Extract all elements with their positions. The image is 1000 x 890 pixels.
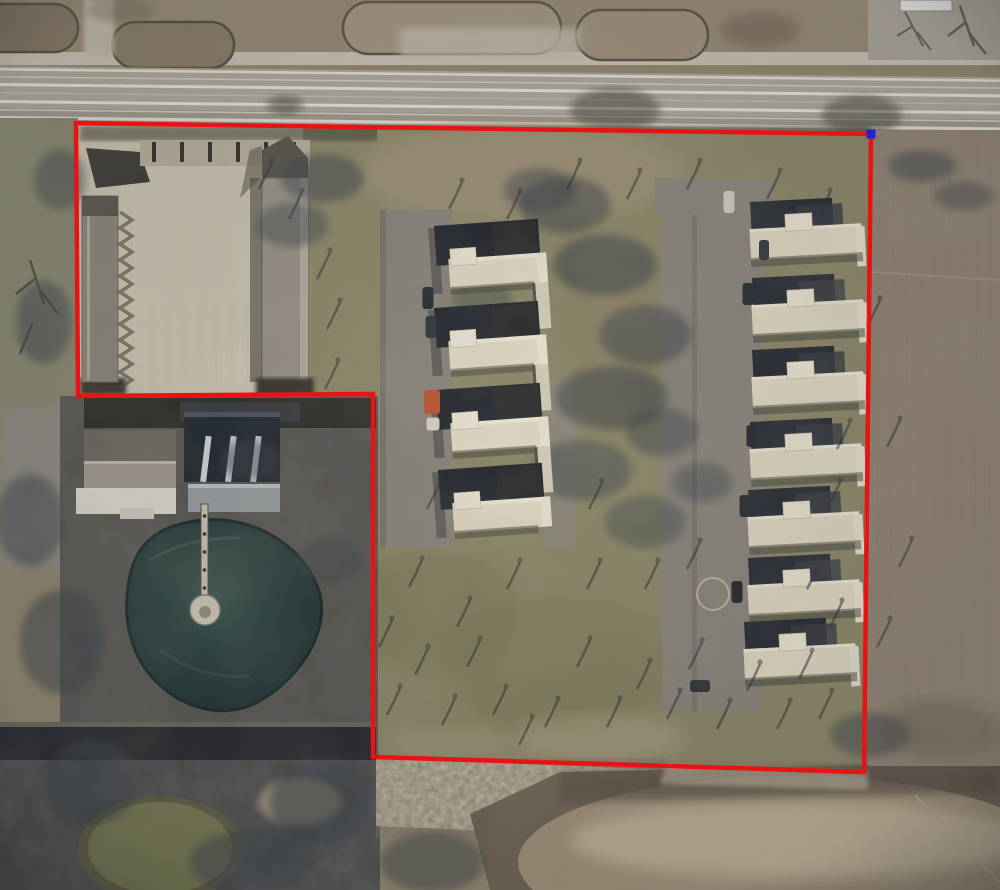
aerial-photo	[0, 0, 1000, 890]
boundary-vertex-handle[interactable]	[867, 130, 876, 139]
aerial-map	[0, 0, 1000, 890]
